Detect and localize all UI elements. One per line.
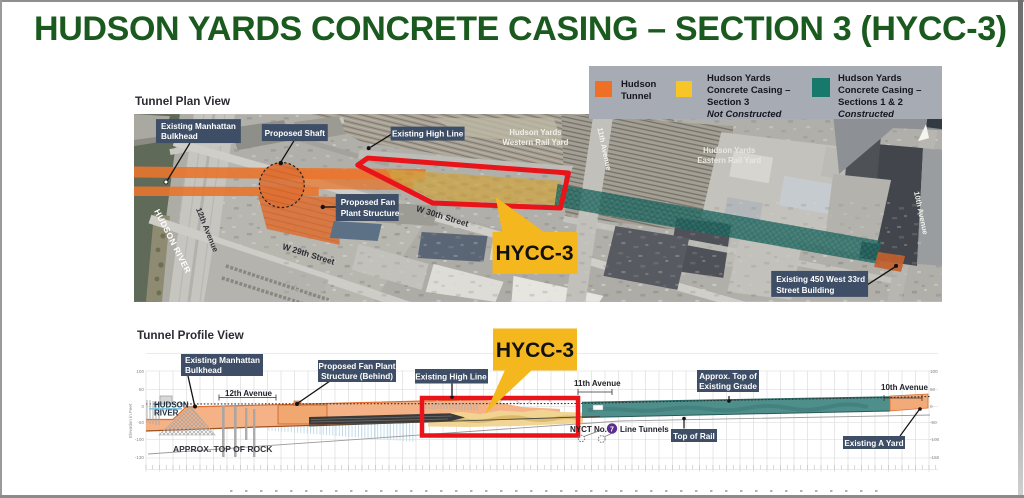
- svg-text:Line Tunnels: Line Tunnels: [620, 425, 669, 434]
- svg-text:Top of Rail: Top of Rail: [673, 432, 715, 441]
- svg-text:50: 50: [139, 387, 145, 392]
- svg-text:10th Avenue: 10th Avenue: [881, 383, 929, 392]
- svg-text:APPROX. TOP OF ROCK: APPROX. TOP OF ROCK: [173, 444, 273, 454]
- svg-text:Western Rail Yard: Western Rail Yard: [503, 138, 569, 147]
- svg-text:100: 100: [136, 369, 144, 374]
- svg-text:HYCC-3: HYCC-3: [495, 242, 573, 265]
- svg-text:Elevation in Feet: Elevation in Feet: [128, 403, 133, 438]
- svg-text:-150: -150: [930, 455, 940, 460]
- svg-text:RIVER: RIVER: [154, 409, 179, 418]
- svg-text:-50: -50: [930, 420, 937, 425]
- svg-text:Plant Structure: Plant Structure: [341, 209, 400, 218]
- svg-text:Approx. Top of: Approx. Top of: [699, 372, 757, 381]
- svg-text:Proposed Shaft: Proposed Shaft: [265, 129, 326, 138]
- svg-text:0: 0: [930, 404, 933, 409]
- svg-text:50: 50: [930, 387, 936, 392]
- svg-text:Bulkhead: Bulkhead: [161, 132, 198, 141]
- svg-text:12th Avenue: 12th Avenue: [225, 389, 273, 398]
- svg-text:Existing High Line: Existing High Line: [415, 373, 487, 382]
- svg-text:Existing Manhattan: Existing Manhattan: [185, 356, 260, 365]
- svg-text:HYCC-3: HYCC-3: [496, 339, 574, 362]
- svg-text:Structure (Behind): Structure (Behind): [321, 372, 393, 381]
- svg-text:-100: -100: [930, 437, 940, 442]
- svg-text:7: 7: [610, 426, 614, 433]
- svg-text:Proposed Fan Plant: Proposed Fan Plant: [319, 362, 396, 371]
- svg-text:NYCT No.: NYCT No.: [570, 425, 607, 434]
- svg-text:Eastern Rail Yard: Eastern Rail Yard: [697, 156, 761, 165]
- svg-text:Existing 450 West 33rd: Existing 450 West 33rd: [776, 275, 865, 284]
- svg-text:0: 0: [141, 404, 144, 409]
- svg-text:-130: -130: [135, 455, 145, 460]
- svg-text:Existing Manhattan: Existing Manhattan: [161, 122, 236, 131]
- svg-text:-50: -50: [137, 420, 144, 425]
- svg-text:Hudson Yards: Hudson Yards: [509, 128, 562, 137]
- svg-text:Proposed Fan: Proposed Fan: [341, 198, 396, 207]
- svg-text:Street Building: Street Building: [776, 286, 834, 295]
- svg-text:Bulkhead: Bulkhead: [185, 366, 222, 375]
- svg-text:Hudson Yards: Hudson Yards: [703, 146, 756, 155]
- svg-text:100: 100: [930, 369, 938, 374]
- svg-text:Existing A Yard: Existing A Yard: [844, 439, 903, 448]
- svg-text:Existing Grade: Existing Grade: [699, 382, 757, 391]
- svg-text:11th Avenue: 11th Avenue: [574, 379, 621, 388]
- svg-text:-100: -100: [135, 437, 145, 442]
- svg-text:Existing High Line: Existing High Line: [392, 130, 464, 139]
